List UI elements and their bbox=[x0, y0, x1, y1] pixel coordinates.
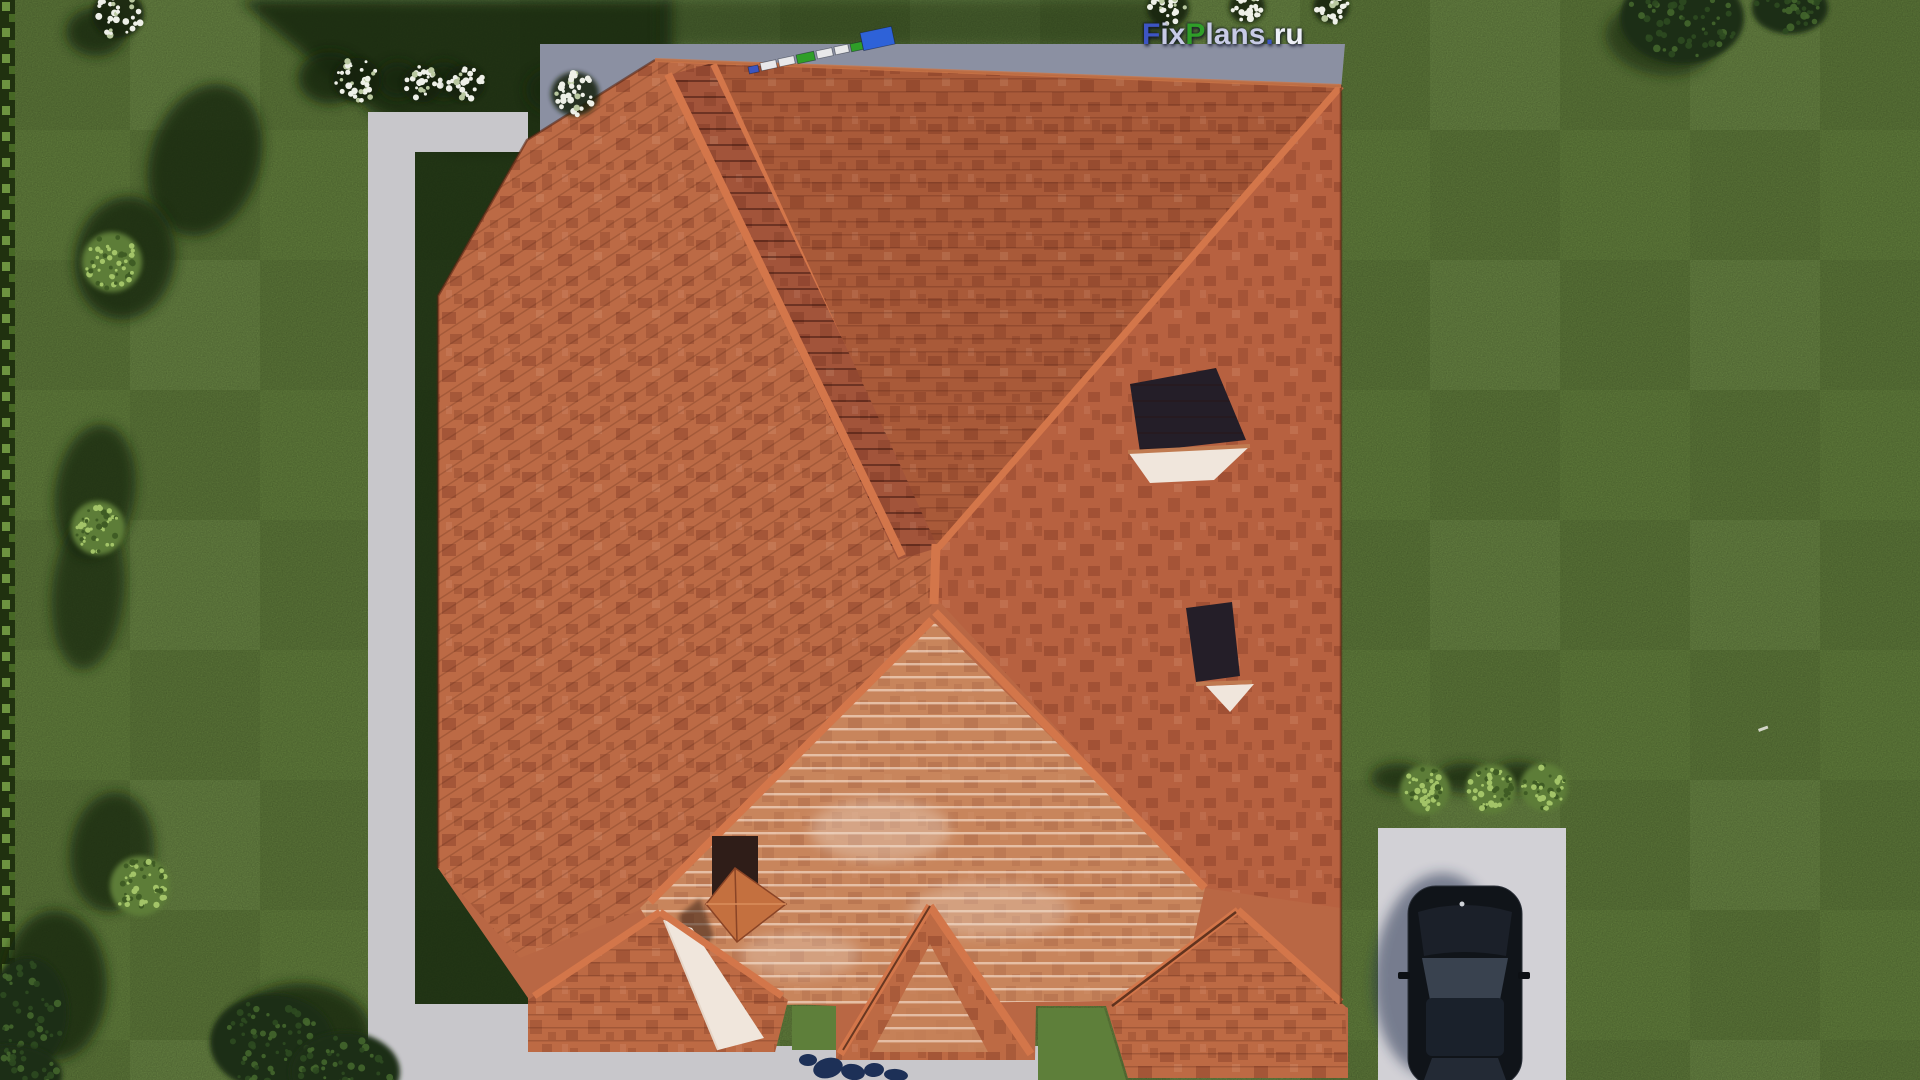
side-path bbox=[368, 112, 415, 1010]
hedge-foliage bbox=[0, 0, 15, 1080]
house-roof bbox=[438, 60, 1348, 1080]
car-hood bbox=[1418, 905, 1512, 956]
watermark-letter-group: lans bbox=[1205, 18, 1265, 52]
green-bush bbox=[82, 232, 142, 292]
efflorescence bbox=[740, 931, 860, 979]
flower-bush bbox=[445, 65, 485, 102]
car-roof bbox=[1426, 998, 1504, 1056]
green-bush bbox=[71, 501, 125, 555]
ruler-segment bbox=[748, 65, 759, 74]
green-bush bbox=[1400, 765, 1450, 815]
side-path-jog bbox=[368, 112, 528, 152]
car-antenna bbox=[1460, 902, 1465, 907]
watermark-letter-group: F bbox=[1142, 18, 1160, 52]
watermark-letter-group: ix bbox=[1160, 18, 1185, 52]
car-mirror-right bbox=[1518, 972, 1530, 979]
remnant-blob bbox=[799, 1054, 817, 1066]
ridge-connector bbox=[934, 544, 936, 604]
efflorescence bbox=[810, 798, 950, 862]
green-bush bbox=[1520, 763, 1568, 811]
green-bush bbox=[1466, 764, 1516, 814]
car-rear-window bbox=[1424, 1058, 1506, 1080]
green-bush bbox=[110, 856, 170, 916]
watermark-letter-group: ru bbox=[1274, 18, 1304, 52]
car-mirror-left bbox=[1398, 972, 1410, 979]
grass-gap bbox=[792, 1006, 836, 1050]
aerial-render: FixPlans.ru bbox=[0, 0, 1920, 1080]
top-lawn-shadow bbox=[660, 0, 1180, 46]
watermark-text: FixPlans.ru bbox=[1142, 18, 1304, 52]
watermark-letter-group: . bbox=[1265, 18, 1273, 52]
car-windshield bbox=[1422, 958, 1508, 1000]
watermark-letter-group: P bbox=[1185, 18, 1205, 52]
